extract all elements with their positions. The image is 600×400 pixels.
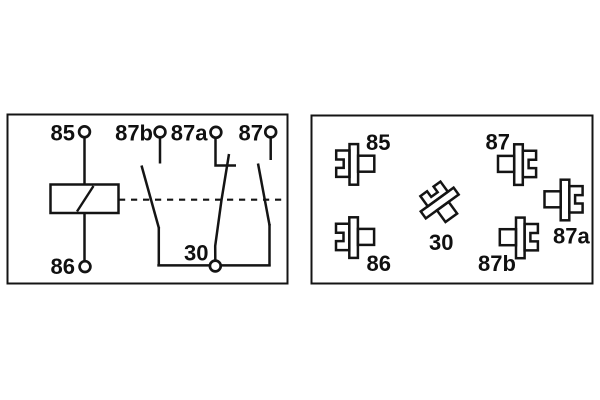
svg-text:87b: 87b bbox=[115, 121, 153, 146]
svg-text:30: 30 bbox=[429, 230, 453, 255]
svg-text:87: 87 bbox=[239, 121, 263, 146]
svg-text:87a: 87a bbox=[171, 121, 208, 146]
svg-text:85: 85 bbox=[366, 130, 390, 155]
svg-text:87a: 87a bbox=[553, 224, 590, 249]
svg-text:85: 85 bbox=[51, 121, 75, 146]
svg-text:87b: 87b bbox=[478, 251, 516, 276]
svg-text:86: 86 bbox=[51, 254, 75, 279]
svg-text:86: 86 bbox=[367, 251, 391, 276]
svg-text:30: 30 bbox=[184, 241, 208, 266]
svg-text:87: 87 bbox=[486, 130, 510, 155]
